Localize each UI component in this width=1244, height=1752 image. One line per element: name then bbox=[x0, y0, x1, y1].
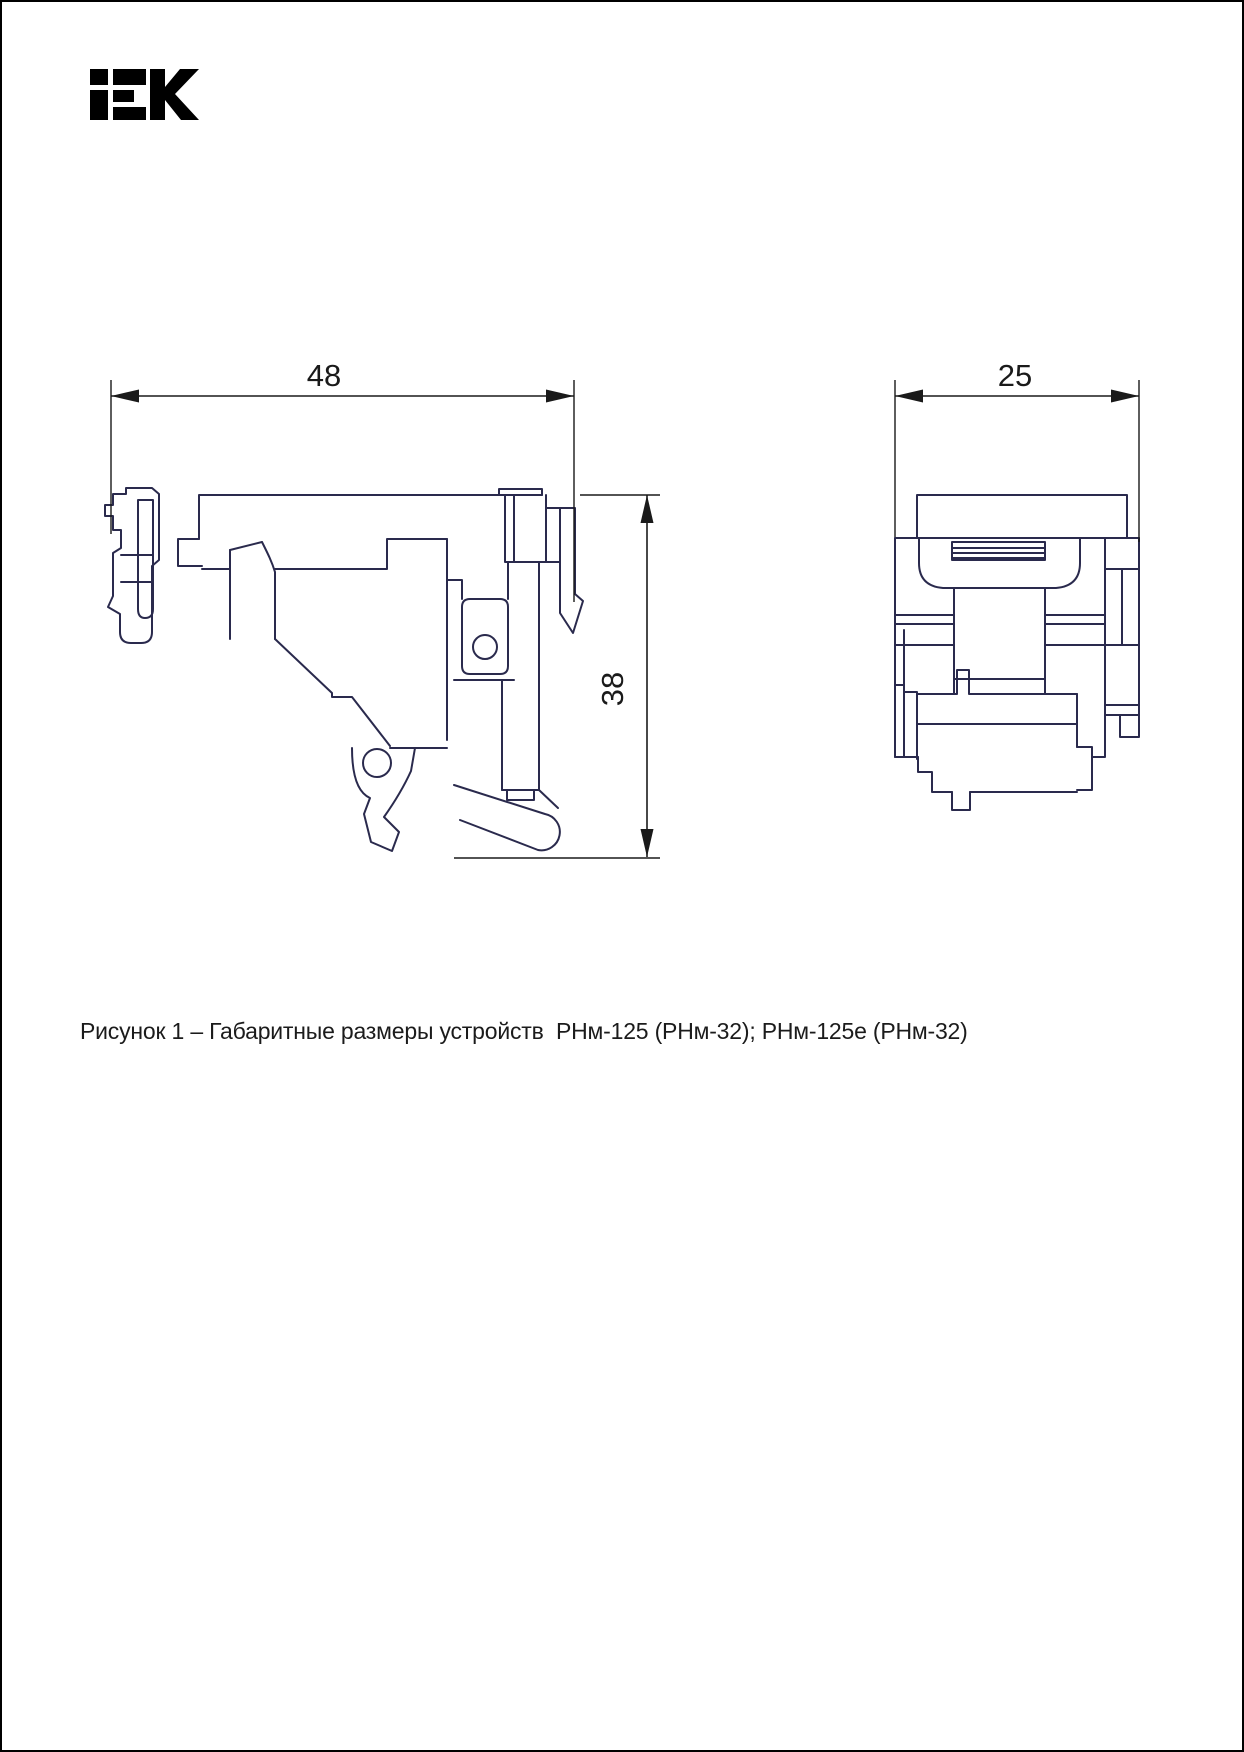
side-view-drawing: 48 38 bbox=[105, 358, 660, 858]
side-view-height-dimension: 38 bbox=[454, 495, 660, 858]
dimensional-drawing: 48 38 bbox=[2, 2, 1244, 1752]
dimension-arrow-right bbox=[546, 390, 574, 403]
dimension-arrow-left bbox=[111, 390, 139, 403]
document-page: 48 38 bbox=[0, 0, 1244, 1752]
front-view-width-dimension: 25 bbox=[895, 358, 1139, 542]
front-view-geometry bbox=[895, 495, 1139, 810]
side-view-geometry bbox=[105, 488, 583, 851]
dimension-arrow-up bbox=[641, 495, 654, 523]
front-width-label: 25 bbox=[998, 358, 1032, 393]
figure-caption: Рисунок 1 – Габаритные размеры устройств… bbox=[80, 1018, 1080, 1045]
dimension-arrow-left bbox=[895, 390, 923, 403]
side-height-label: 38 bbox=[595, 672, 630, 706]
dimension-arrow-right bbox=[1111, 390, 1139, 403]
dimension-arrow-down bbox=[641, 829, 654, 857]
front-view-drawing: 25 bbox=[895, 358, 1139, 810]
side-width-label: 48 bbox=[307, 358, 341, 393]
